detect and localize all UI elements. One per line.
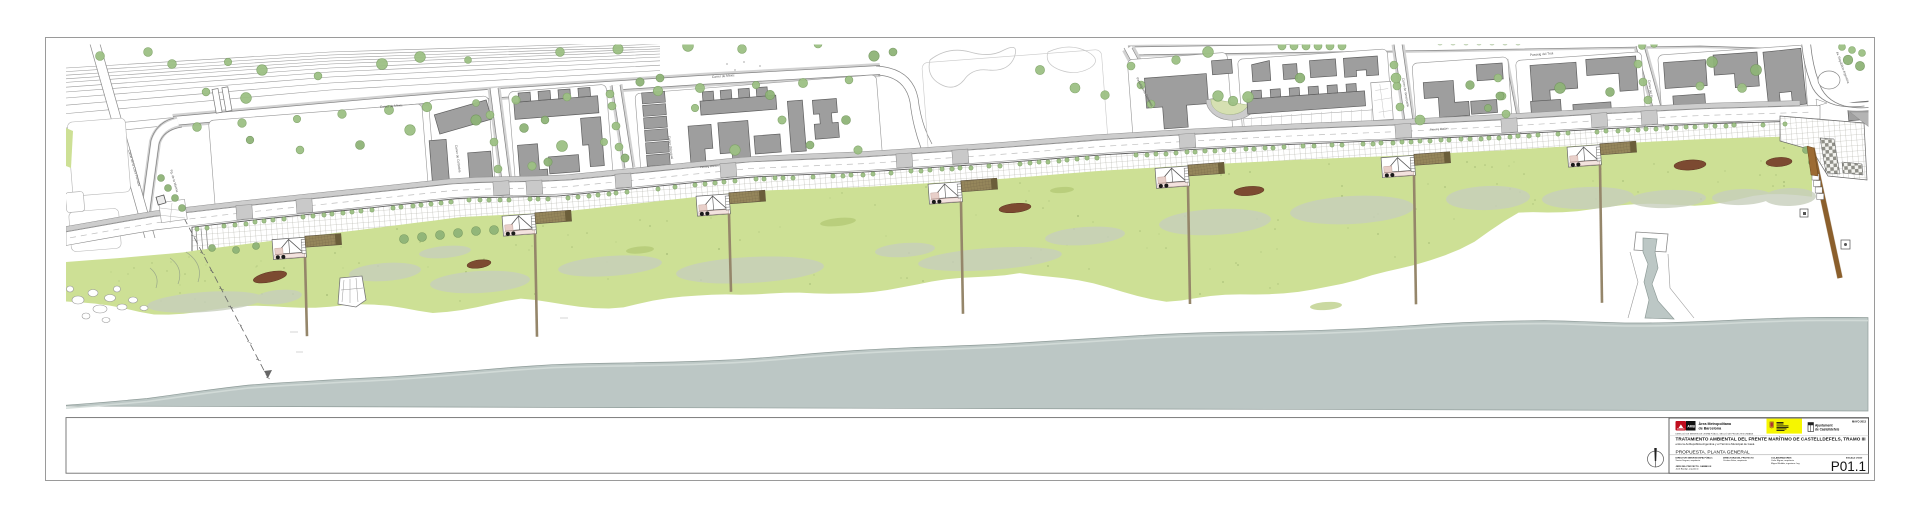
svg-text:JEFE DEL PROYECTO. CAMBIO III: JEFE DEL PROYECTO. CAMBIO III <box>1676 465 1712 468</box>
svg-text:AMB: AMB <box>1687 424 1695 428</box>
svg-text:Cristina Sáez, arquitecta: Cristina Sáez, arquitecta <box>1723 459 1748 462</box>
svg-text:de Castelldefels: de Castelldefels <box>1815 428 1839 432</box>
svg-text:TRATAMIENTO AMBIENTAL DEL FREN: TRATAMIENTO AMBIENTAL DEL FRENTE MARÍTIM… <box>1676 434 1866 441</box>
svg-text:MAYO 2013: MAYO 2013 <box>1852 420 1867 424</box>
svg-text:DIRECTOR SERVEIS ESPAI PÚBLIC: DIRECTOR SERVEIS ESPAI PÚBLIC <box>1676 456 1714 459</box>
svg-text:P01.1: P01.1 <box>1831 459 1866 474</box>
svg-text:DIRECTORA DEL PROYECTO: DIRECTORA DEL PROYECTO <box>1723 456 1754 459</box>
svg-text:entre la Av.República Argentin: entre la Av.República Argentina y el Tér… <box>1676 442 1755 446</box>
svg-text:PROPUESTA. PLANTA GENERAL: PROPUESTA. PLANTA GENERAL <box>1676 449 1751 455</box>
svg-text:Carla Riguer, arquitecta: Carla Riguer, arquitecta <box>1771 459 1795 462</box>
svg-text:Miguel Roldán, ingeniero. Ing.: Miguel Roldán, ingeniero. Ing. <box>1771 462 1800 465</box>
svg-text:DIRECCIÓ DE SERVEIS DE L'ESPAI: DIRECCIÓ DE SERVEIS DE L'ESPAI PÚBLIC. S… <box>1676 432 1754 435</box>
svg-text:Jordi Bardají, arquitecte: Jordi Bardají, arquitecte <box>1676 468 1700 471</box>
svg-text:Àrea Metropolitana: Àrea Metropolitana <box>1699 421 1733 426</box>
svg-text:de Barcelona: de Barcelona <box>1699 426 1723 430</box>
svg-text:COLABORADORES: COLABORADORES <box>1771 456 1792 459</box>
svg-text:Xavier Segura, arquitecte: Xavier Segura, arquitecte <box>1676 459 1701 462</box>
